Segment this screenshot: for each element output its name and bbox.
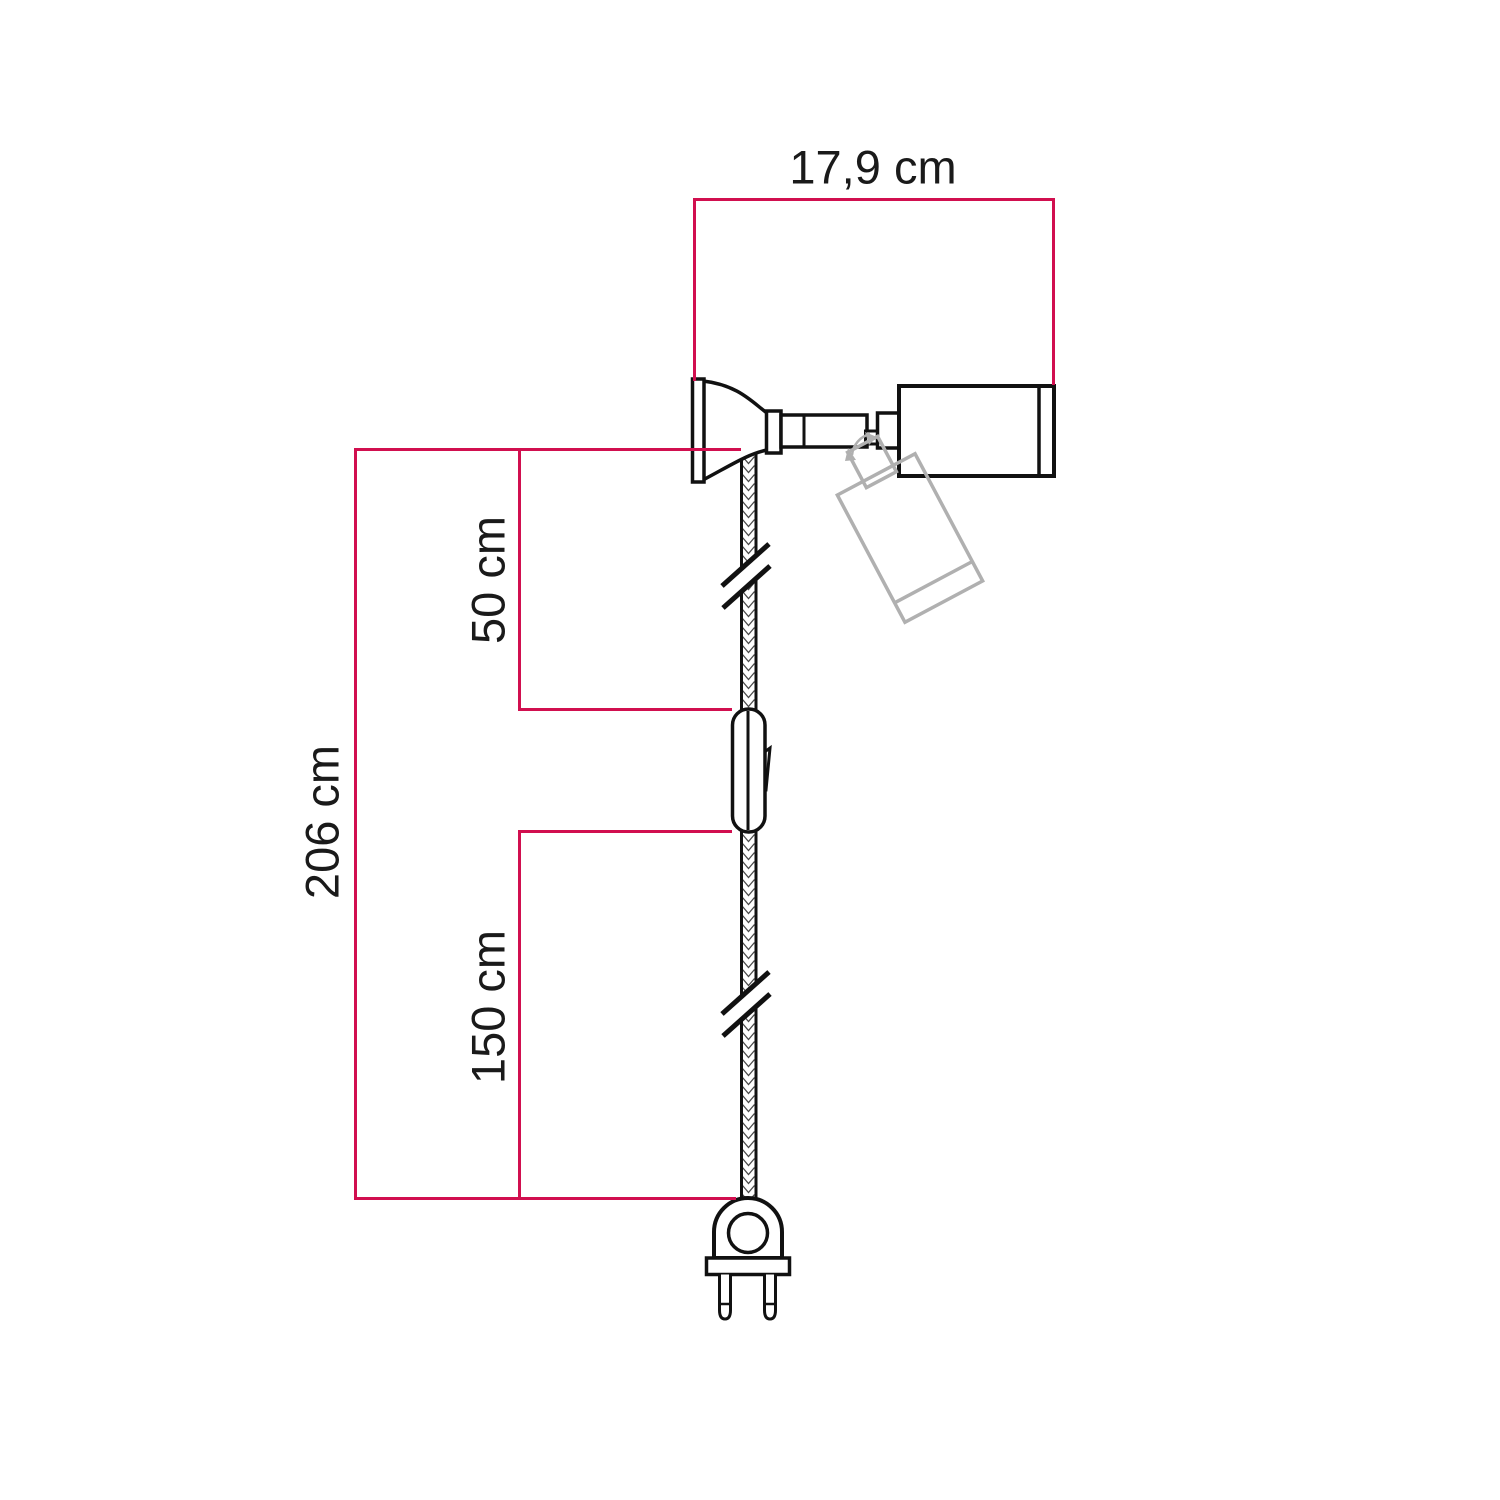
width-dimension-line xyxy=(695,200,1054,386)
plug-pin-left xyxy=(720,1275,731,1320)
inline-switch xyxy=(733,709,771,832)
lower-section-dimension-label: 150 cm xyxy=(465,930,512,1084)
extension-arm xyxy=(781,415,867,447)
upper-section-dimension-line xyxy=(520,451,733,710)
lower-section-dimension-line xyxy=(520,832,733,1199)
spotlight-body xyxy=(899,386,1054,476)
neck-ring xyxy=(767,411,782,453)
plug-hole xyxy=(729,1214,768,1253)
plug-flange xyxy=(707,1258,790,1275)
upper-section-dimension-label: 50 cm xyxy=(465,516,512,644)
wall-mount-plate xyxy=(693,379,705,482)
total-height-dimension-label: 206 cm xyxy=(299,745,346,899)
lamp-dimension-diagram: 17,9 cm 50 cm 206 cm 150 cm xyxy=(0,0,1500,1500)
power-plug xyxy=(707,1198,790,1319)
width-dimension-label: 17,9 cm xyxy=(789,144,956,191)
plug-pin-right xyxy=(765,1275,776,1320)
lamp-technical-drawing xyxy=(0,0,1500,1500)
